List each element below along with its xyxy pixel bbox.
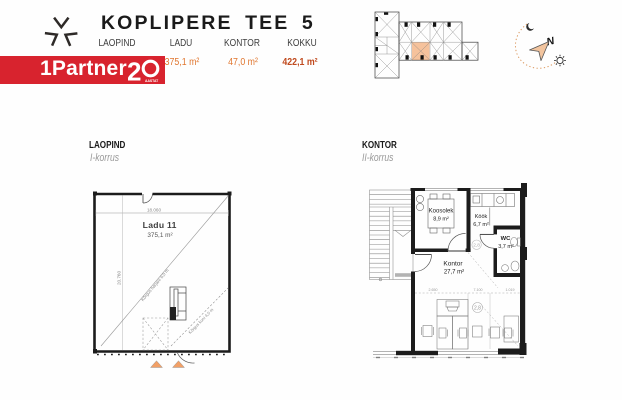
svg-text:7.100: 7.100 [474,288,483,292]
svg-text:6,7 m²: 6,7 m² [473,222,489,228]
svg-text:Köök: Köök [475,214,488,220]
svg-text:Koosolek: Koosolek [429,209,455,215]
svg-text:3,7 m²: 3,7 m² [498,244,514,250]
svg-text:WC: WC [501,236,511,242]
svg-text:2,8: 2,8 [474,306,481,312]
svg-text:1.019: 1.019 [506,288,515,292]
svg-text:2: 2 [128,57,141,84]
svg-text:AASTAT: AASTAT [145,79,159,83]
svg-text:Kõrgus harjani 6,0 m: Kõrgus harjani 6,0 m [140,268,170,303]
svg-text:Ladu 11: Ladu 11 [143,220,177,230]
svg-text:2,8: 2,8 [473,243,480,249]
svg-text:375,1 m²: 375,1 m² [147,232,172,239]
svg-text:20.760: 20.760 [117,271,122,285]
svg-text:27,7 m²: 27,7 m² [444,270,464,276]
svg-text:2.650: 2.650 [429,288,438,292]
svg-text:8,9 m²: 8,9 m² [433,217,449,223]
svg-text:Kõrgus kuni 4,0 m: Kõrgus kuni 4,0 m [187,307,214,335]
svg-text:18.060: 18.060 [147,208,161,213]
svg-text:Kontor: Kontor [443,261,463,268]
